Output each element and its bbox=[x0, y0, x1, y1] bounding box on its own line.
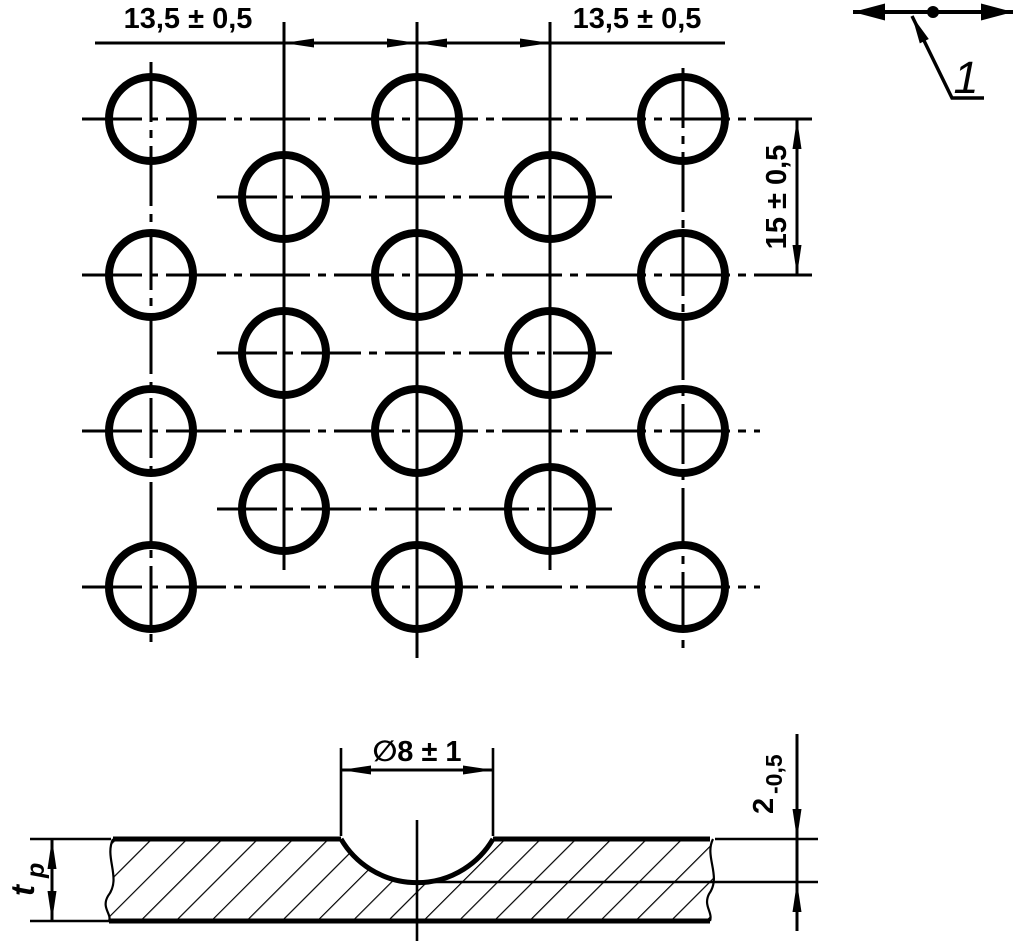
arrowhead-icon bbox=[284, 39, 314, 48]
arrowhead-icon bbox=[793, 245, 802, 275]
callout-number: 1 bbox=[953, 52, 978, 103]
leader-arrowhead-icon bbox=[912, 16, 929, 43]
thickness-subscript: p bbox=[22, 863, 50, 879]
arrow-right-icon bbox=[981, 4, 1013, 21]
arrowhead-icon bbox=[341, 766, 371, 775]
dimension-pitch: 13,5 ± 0,5 13,5 ± 0,5 bbox=[95, 3, 725, 48]
dim-label-row-spacing: 15 ± 0,5 bbox=[761, 145, 793, 250]
arrowhead-icon bbox=[387, 39, 417, 48]
reference-dot-icon bbox=[927, 6, 939, 18]
dimension-row-spacing: 15 ± 0,5 bbox=[761, 119, 802, 275]
dim-depth-tolerance: -0,5 bbox=[761, 754, 787, 794]
dim-label-thickness: t p bbox=[4, 863, 50, 896]
dim-label-depth: 2 -0,5 bbox=[748, 754, 787, 814]
thickness-symbol: t bbox=[4, 883, 41, 896]
arrowhead-icon bbox=[520, 39, 550, 48]
arrowhead-icon bbox=[793, 119, 802, 149]
arrowhead-icon bbox=[463, 766, 493, 775]
dim-label-pitch-right: 13,5 ± 0,5 bbox=[573, 3, 702, 35]
arrowhead-icon bbox=[793, 882, 802, 912]
arrowhead-icon bbox=[417, 39, 447, 48]
plan-view: 13,5 ± 0,5 13,5 ± 0,5 15 ± 0,5 1 bbox=[82, 3, 1013, 658]
section-view: ∅8 ± 1 2 -0,5 t p bbox=[4, 734, 818, 941]
arrowhead-icon bbox=[48, 891, 57, 921]
dim-depth-value: 2 bbox=[748, 798, 780, 814]
arrowhead-icon bbox=[793, 809, 802, 839]
technical-drawing-page: 13,5 ± 0,5 13,5 ± 0,5 15 ± 0,5 1 bbox=[0, 0, 1016, 944]
drawing-canvas: 13,5 ± 0,5 13,5 ± 0,5 15 ± 0,5 1 bbox=[0, 0, 1016, 944]
dim-label-pitch-left: 13,5 ± 0,5 bbox=[124, 3, 253, 35]
dimension-plate-thickness: t p bbox=[4, 839, 111, 921]
dim-label-dimple-diameter: ∅8 ± 1 bbox=[372, 736, 461, 768]
direction-callout: 1 bbox=[853, 4, 1013, 104]
arrow-left-icon bbox=[853, 4, 885, 21]
